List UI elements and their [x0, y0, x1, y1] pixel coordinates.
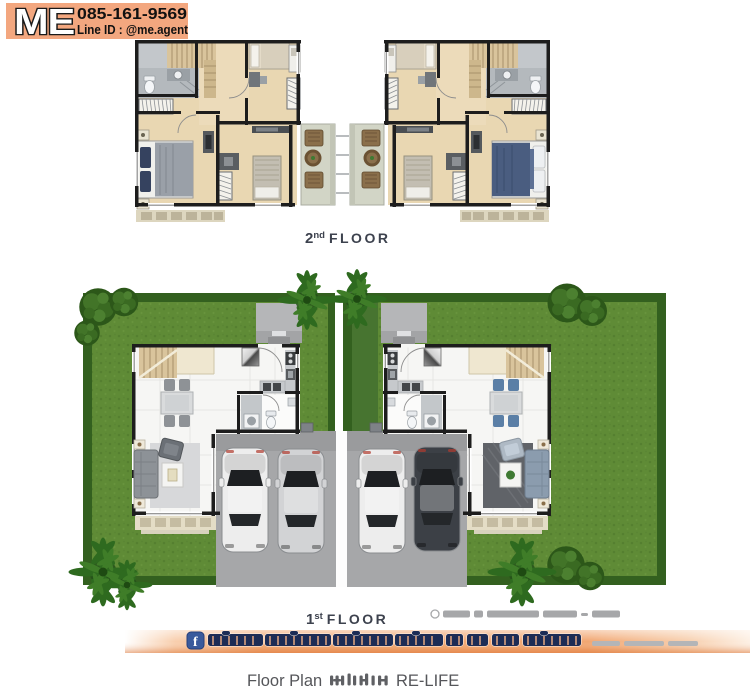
- svg-text:Floor Plan: Floor Plan: [247, 672, 322, 690]
- svg-text:f: f: [193, 635, 198, 650]
- svg-text:RE-LIFE: RE-LIFE: [396, 672, 459, 690]
- svg-text:085-161-9569: 085-161-9569: [77, 6, 187, 23]
- svg-text:Line ID : @me.agent: Line ID : @me.agent: [77, 22, 189, 37]
- svg-text:ME: ME: [14, 1, 74, 42]
